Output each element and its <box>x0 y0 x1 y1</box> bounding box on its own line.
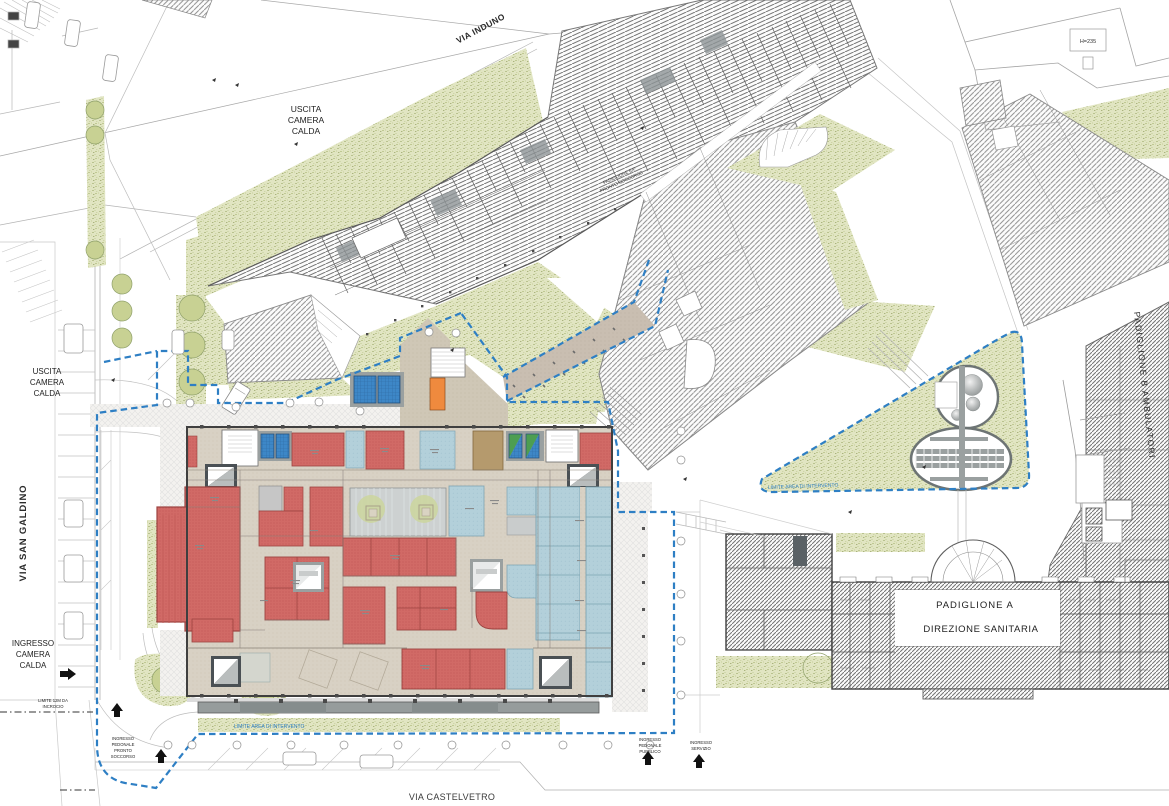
svg-text:LIMITE 12M DA: LIMITE 12M DA <box>38 698 68 703</box>
svg-text:INGRESSO: INGRESSO <box>112 736 135 741</box>
svg-text:PADIGLIONE A: PADIGLIONE A <box>936 600 1014 611</box>
svg-text:INGRESSO: INGRESSO <box>690 740 713 745</box>
svg-text:CAMERA: CAMERA <box>16 650 51 659</box>
svg-text:CAMERA: CAMERA <box>288 115 325 125</box>
svg-text:INCROCIO: INCROCIO <box>43 704 65 709</box>
svg-text:INGRESSO: INGRESSO <box>639 737 662 742</box>
svg-text:SOCCORSO: SOCCORSO <box>111 754 136 759</box>
svg-text:SERVIZIO: SERVIZIO <box>691 746 711 751</box>
svg-text:PRONTO: PRONTO <box>114 748 133 753</box>
svg-text:H=235: H=235 <box>1080 39 1096 45</box>
svg-text:VIA SAN GALDINO: VIA SAN GALDINO <box>18 485 29 582</box>
svg-text:PUBBLICO: PUBBLICO <box>639 749 661 754</box>
svg-text:USCITA: USCITA <box>291 104 322 114</box>
svg-text:CALDA: CALDA <box>292 126 321 136</box>
svg-text:CALDA: CALDA <box>34 389 61 398</box>
svg-text:PEDONALE: PEDONALE <box>112 742 135 747</box>
svg-text:LIMITE AREA DI INTERVENTO: LIMITE AREA DI INTERVENTO <box>234 724 304 730</box>
svg-text:INGRESSO: INGRESSO <box>12 639 54 648</box>
svg-text:CALDA: CALDA <box>20 661 47 670</box>
svg-text:VIA CASTELVETRO: VIA CASTELVETRO <box>409 792 495 802</box>
svg-text:USCITA: USCITA <box>33 367 62 376</box>
svg-text:CAMERA: CAMERA <box>30 378 65 387</box>
svg-text:DIREZIONE SANITARIA: DIREZIONE SANITARIA <box>923 624 1038 635</box>
svg-text:PEDONALE: PEDONALE <box>639 743 662 748</box>
